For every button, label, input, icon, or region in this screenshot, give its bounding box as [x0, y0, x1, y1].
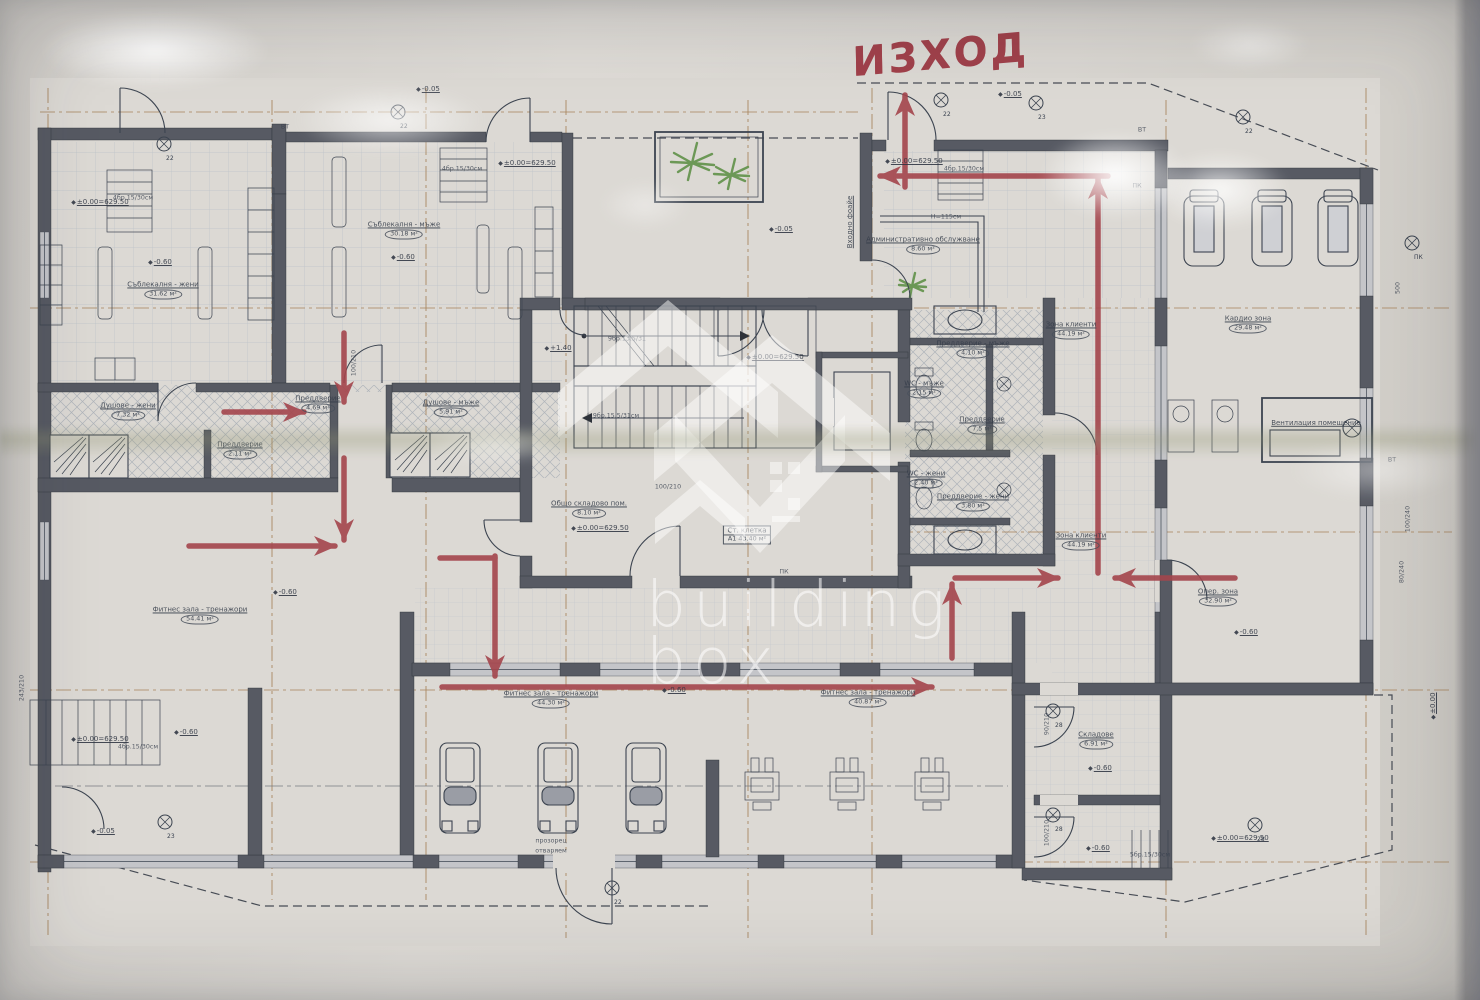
- svg-text:22: 22: [400, 123, 408, 130]
- svg-text:22: 22: [943, 111, 951, 118]
- svg-text:22: 22: [614, 899, 622, 906]
- benchmark-symbol: ПК: [1405, 236, 1424, 261]
- svg-text:28: 28: [1257, 836, 1265, 843]
- floor-plan-drawing: 22222223222223ПК282828: [0, 0, 1480, 1000]
- svg-text:23: 23: [167, 833, 175, 840]
- svg-text:ПК: ПК: [1414, 254, 1424, 261]
- svg-text:23: 23: [1038, 114, 1046, 121]
- svg-text:22: 22: [1245, 128, 1253, 135]
- svg-text:28: 28: [1055, 826, 1063, 833]
- svg-text:28: 28: [1055, 722, 1063, 729]
- svg-text:22: 22: [166, 155, 174, 162]
- floor-plan-photo: 22222223222223ПК282828 Съблекалня - жени…: [0, 0, 1480, 1000]
